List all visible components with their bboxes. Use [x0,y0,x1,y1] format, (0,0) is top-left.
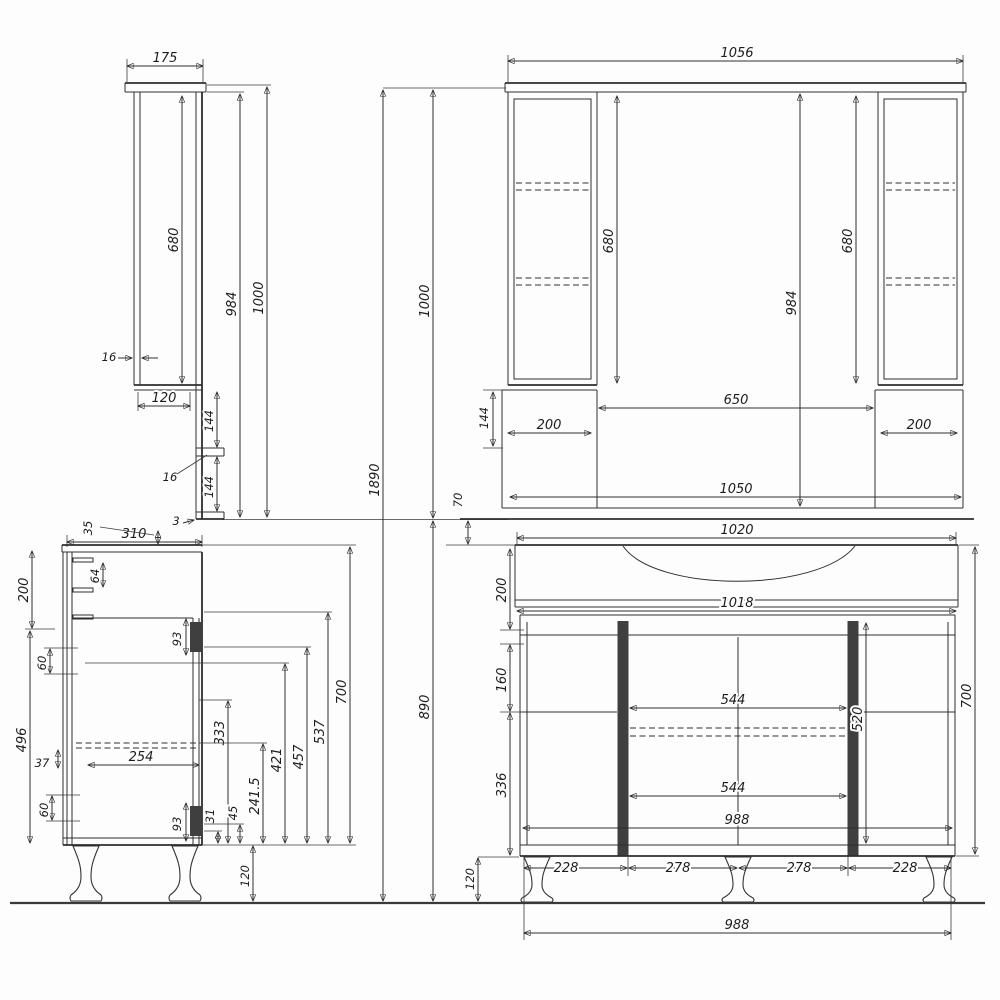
upper-hinge [190,622,202,652]
dim-vanity-front-leg-spacing-2: 278 [666,861,691,876]
dim-vanity-side-body-height: 496 [15,728,30,753]
dim-vanity-side-700: 700 [335,680,350,705]
dim-overall-gap: 70 [451,493,465,508]
dim-vanity-front-drawer-section: 160 [495,668,510,693]
dim-vanity-side-45: 45 [226,806,240,821]
dim-vanity-front-carcass-width: 988 [725,813,750,828]
dim-vanity-front-door-height: 520 [851,707,866,732]
dim-vanity-side-421: 421 [270,748,285,773]
dim-vanity-side-537: 537 [313,719,328,745]
mirror-side-view: 175 680 16 120 144 16 144 3 [102,51,271,528]
dim-mirror-side-lower-gap: 144 [202,476,216,498]
dim-mirror-front-right-cab-height: 680 [841,229,856,254]
dim-overall-vanity-height: 890 [418,695,433,720]
dim-vanity-side-31: 31 [203,809,217,824]
dim-vanity-front-leg-height: 120 [463,868,477,890]
dim-mirror-side-door-height: 680 [167,228,182,253]
dim-vanity-side-lower-hinge: 93 [170,817,184,832]
vanity-side-view: 310 35 64 200 60 496 37 60 [15,521,356,901]
dim-vanity-side-333: 333 [213,721,228,746]
dim-overall-total-height: 1890 [368,463,383,496]
left-door-stile [618,621,629,856]
dim-vanity-front-lower-opening: 544 [721,781,746,796]
dim-mirror-side-lip: 3 [172,514,179,528]
vanity-front-leg-left [521,857,553,902]
dim-mirror-side-upper-gap: 144 [202,410,216,432]
dim-mirror-front-left-cab-height: 680 [602,229,617,254]
basin-outline [623,546,855,581]
wall-hook-middle [73,588,93,592]
dim-mirror-side-panel: 16 [102,350,117,364]
wall-hook-top [73,558,93,562]
dim-vanity-front-upper-opening: 544 [721,693,746,708]
dim-mirror-side-shelf-depth: 120 [152,391,177,406]
dim-mirror-side-depth: 175 [153,51,178,66]
dim-vanity-side-drawer-depth: 254 [129,750,154,765]
dim-vanity-front-leg-spacing-1: 228 [554,861,579,876]
dim-mirror-front-side-box-height: 144 [477,407,491,429]
dim-vanity-side-top-lip: 35 [81,521,95,536]
dim-vanity-side-hook-spacing: 64 [88,569,102,584]
vanity-front-leg-center [722,857,754,902]
dim-vanity-front-top-width: 1020 [720,523,753,538]
dim-vanity-front-side-height: 700 [960,684,975,709]
dim-mirror-front-right-cab-width: 200 [907,418,932,433]
vanity-front-leg-right [923,857,955,902]
dim-mirror-front-center-opening: 650 [724,393,749,408]
dim-mirror-front-left-cab-width: 200 [537,418,562,433]
vanity-side-leg-front [169,846,201,901]
dim-overall-mirror-height: 1000 [418,284,433,317]
dim-mirror-front-inner-height: 984 [785,291,800,316]
dim-vanity-side-241-5: 241.5 [248,777,263,814]
furniture-dimension-drawing: 1890 1000 890 70 175 680 16 120 [0,0,1000,1000]
dim-mirror-side-shelf-thickness: 16 [163,470,178,484]
dim-vanity-side-rail-offset: 37 [35,756,50,770]
dim-vanity-side-lower-gap: 60 [37,803,51,818]
dim-vanity-side-depth: 310 [122,527,147,542]
dim-vanity-side-457: 457 [292,744,307,770]
dim-mirror-side-inner-height: 984 [225,292,240,317]
dim-vanity-front-counter-width: 1018 [720,596,753,611]
lower-hinge [190,806,202,836]
dim-mirror-front-top-width: 1056 [720,46,753,61]
mirror-front-view: 1056 680 680 984 [460,46,974,519]
vanity-side-leg-back [70,846,102,901]
right-door-stile [848,621,859,856]
dim-vanity-side-leg-height: 120 [238,865,252,887]
dim-mirror-side-total-height: 1000 [252,281,267,314]
dim-vanity-front-bottom-width: 988 [725,918,750,933]
dim-vanity-side-upper-gap: 60 [35,656,49,671]
technical-drawing-page: 1890 1000 890 70 175 680 16 120 [0,0,1000,1000]
dim-vanity-side-top-section: 200 [17,578,32,603]
vanity-front-view: 1020 1018 544 544 520 988 [463,523,979,940]
dim-vanity-front-leg-spacing-3: 278 [787,861,812,876]
dim-vanity-front-door-section: 336 [495,773,510,798]
dim-mirror-front-bottom-width: 1050 [719,482,752,497]
dim-vanity-front-top-section: 200 [495,578,510,603]
dim-vanity-front-leg-spacing-4: 228 [893,861,918,876]
dim-vanity-side-upper-hinge: 93 [170,632,184,647]
